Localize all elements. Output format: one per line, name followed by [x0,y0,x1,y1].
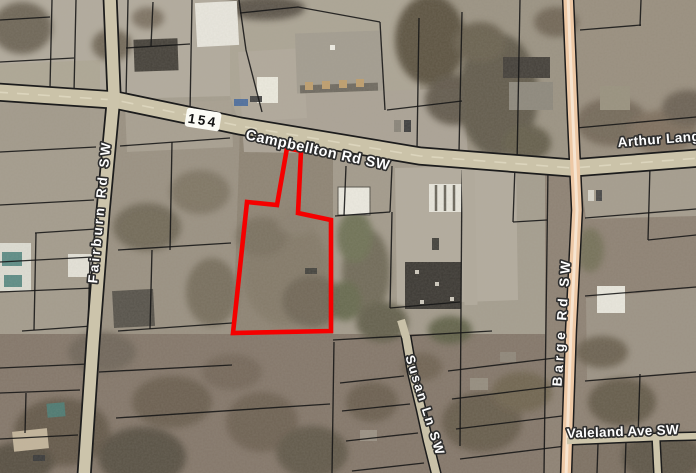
driveway [468,168,471,305]
map-viewport[interactable]: 154 Campbellton Rd SW Arthur Lang Fairbu… [0,0,696,473]
aerial-map[interactable]: 154 Campbellton Rd SW Arthur Lang Fairbu… [0,0,696,473]
